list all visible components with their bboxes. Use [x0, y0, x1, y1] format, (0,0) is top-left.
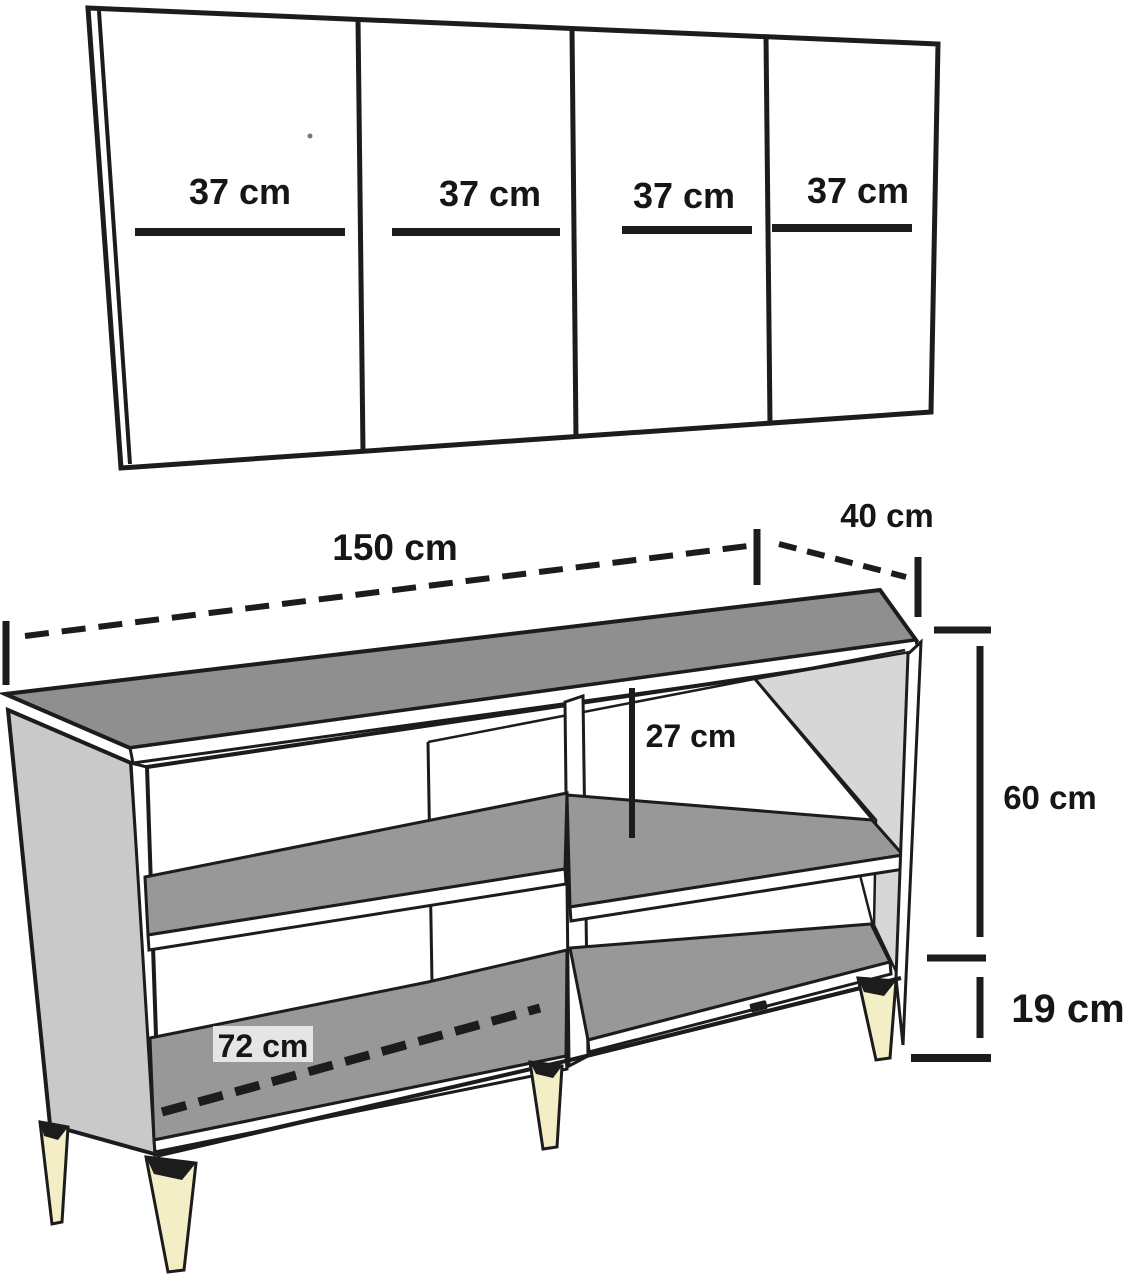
dim-27-label: 27 cm	[646, 718, 737, 754]
door-panel: 37 cm 37 cm 37 cm 37 cm	[88, 8, 938, 468]
dim-150-label: 150 cm	[332, 527, 458, 568]
cabinet-drawing: 150 cm 40 cm 60 cm 19 cm 27 cm 72 cm	[5, 497, 1125, 1272]
dim-height-60: 60 cm	[927, 630, 1097, 958]
speck	[308, 134, 313, 139]
dim-19-label: 19 cm	[1011, 987, 1124, 1031]
furniture-dimension-diagram: 37 cm 37 cm 37 cm 37 cm	[0, 0, 1129, 1277]
door-4-width-label: 37 cm	[807, 170, 909, 211]
door-panel-outline	[88, 8, 938, 468]
dim-72-label: 72 cm	[218, 1028, 309, 1064]
dim-legs-19: 19 cm	[911, 977, 1125, 1058]
door-2-width-label: 37 cm	[439, 173, 541, 214]
dim-40-label: 40 cm	[840, 497, 934, 534]
diagram-canvas: 37 cm 37 cm 37 cm 37 cm	[0, 0, 1129, 1277]
dim-60-label: 60 cm	[1003, 779, 1097, 816]
door-3-width-label: 37 cm	[633, 175, 735, 216]
door-1-width-label: 37 cm	[189, 171, 291, 212]
dim-40-line	[779, 544, 906, 577]
